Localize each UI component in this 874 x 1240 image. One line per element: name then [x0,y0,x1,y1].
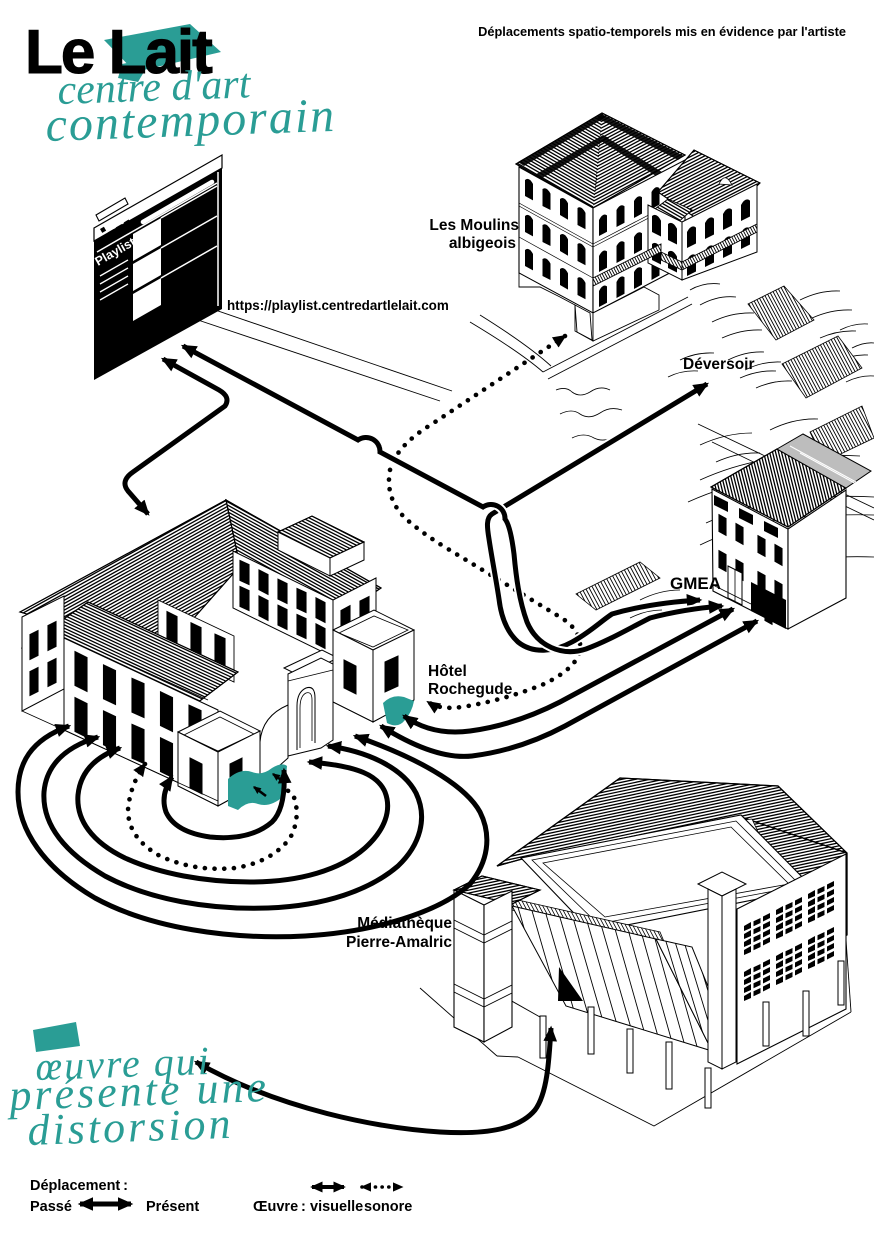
svg-text:Déversoir: Déversoir [683,356,755,373]
svg-text:Déplacements spatio-temporels: Déplacements spatio-temporels mis en évi… [478,24,846,39]
svg-text:Passé: Passé [30,1199,72,1215]
svg-text:GMEA: GMEA [670,574,721,593]
svg-text:Rochegude: Rochegude [428,681,513,698]
svg-text:Pierre-Amalric: Pierre-Amalric [346,934,452,951]
svg-text:sonore: sonore [364,1199,412,1215]
svg-text:contemporain: contemporain [45,89,337,152]
svg-text:Les Moulins: Les Moulins [429,217,519,234]
svg-text:distorsion: distorsion [27,1099,235,1155]
svg-text:Déplacement :: Déplacement : [30,1178,128,1194]
svg-text:visuelle: visuelle [310,1199,363,1215]
svg-text:https://playlist.centredartlel: https://playlist.centredartlelait.com [227,298,449,313]
svg-text:Présent: Présent [146,1199,199,1215]
svg-text:Œuvre :: Œuvre : [253,1199,306,1215]
svg-text:Hôtel: Hôtel [428,663,467,680]
svg-text:albigeois: albigeois [449,235,516,252]
